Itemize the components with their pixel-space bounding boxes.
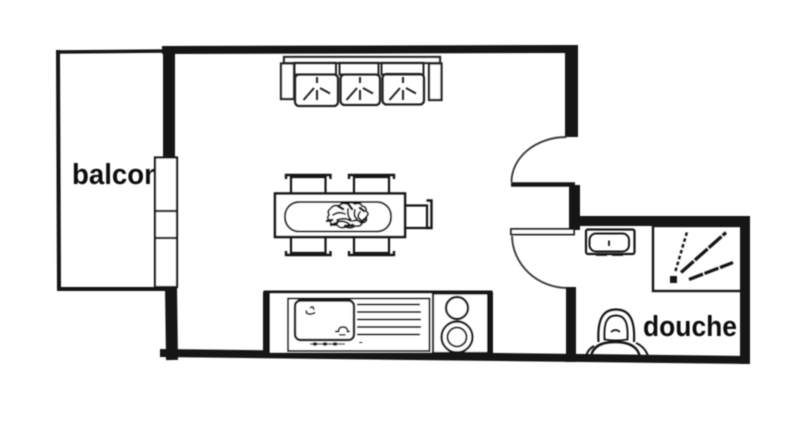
svg-text:douche: douche bbox=[643, 311, 737, 343]
svg-text:balcon: balcon bbox=[72, 159, 161, 191]
